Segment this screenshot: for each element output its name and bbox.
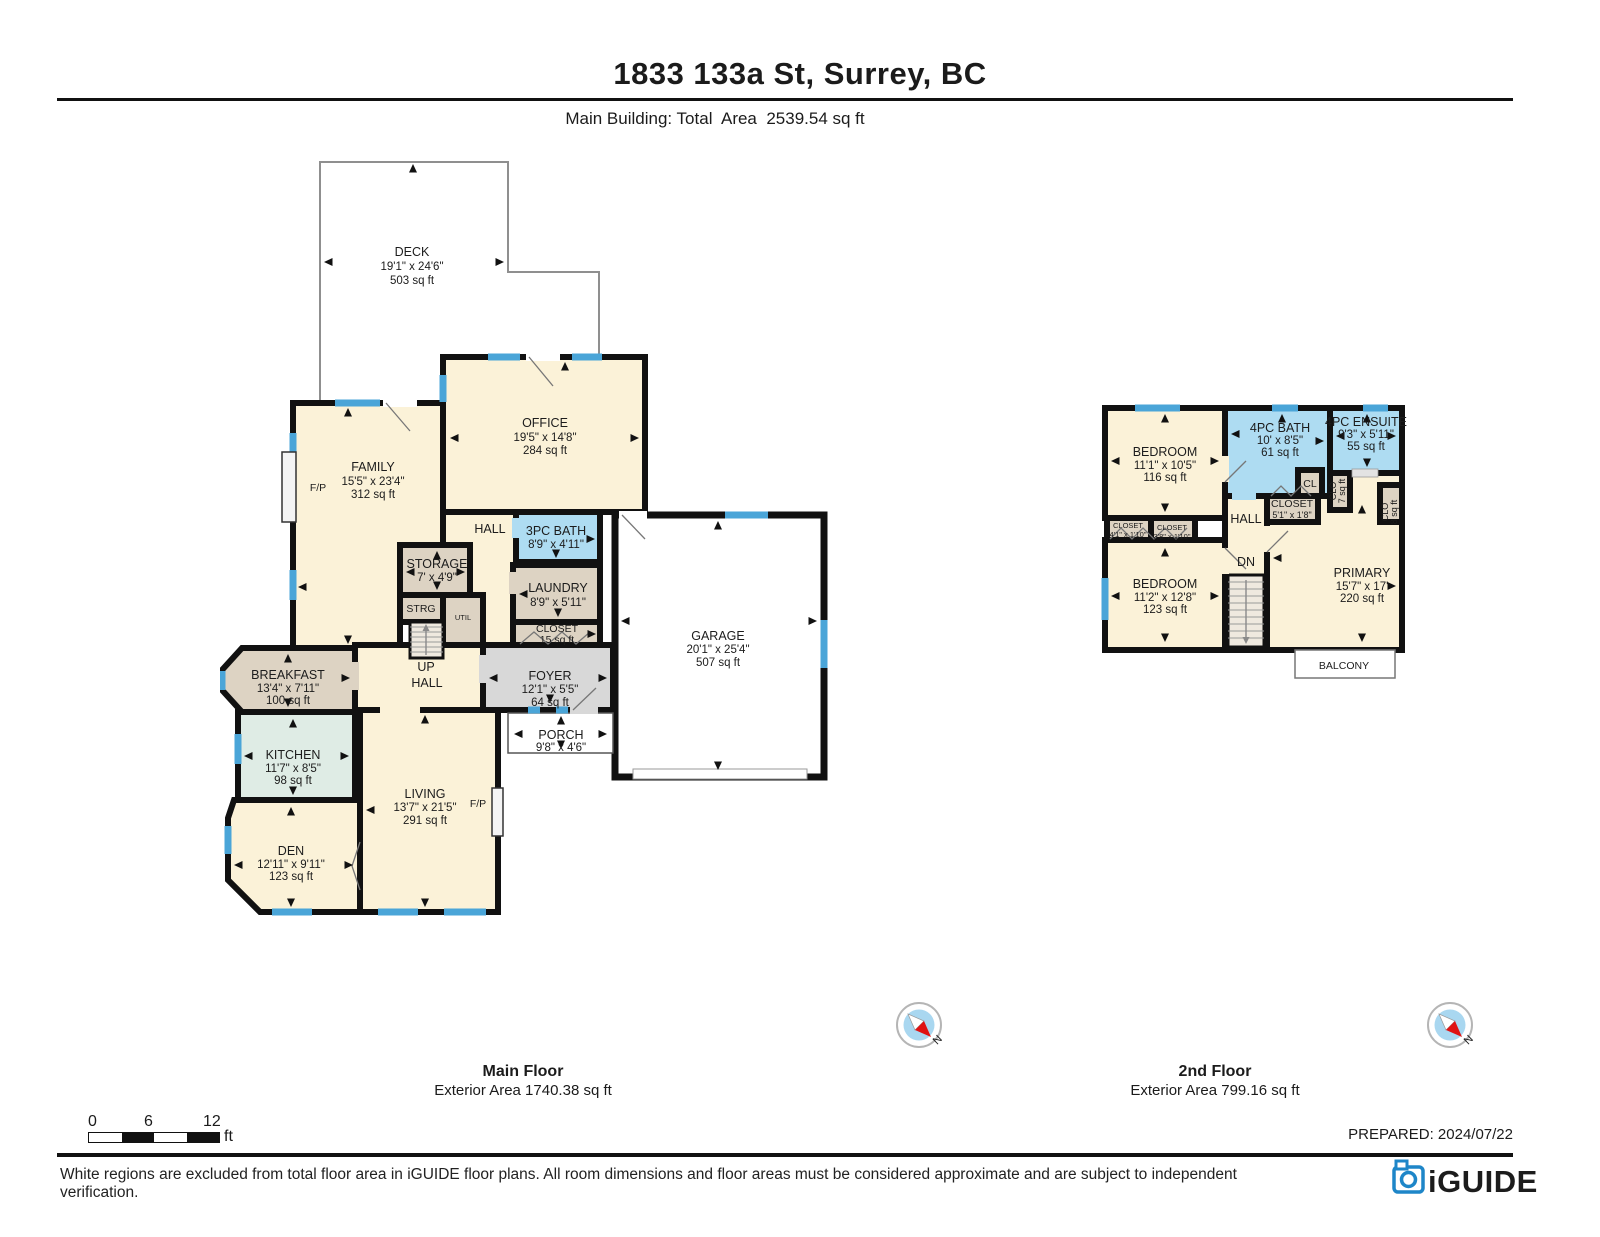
total-area-subtitle: Main Building: Total Area 2539.54 sq ft <box>415 109 1015 129</box>
foyer-name: FOYER <box>528 669 571 683</box>
dn-label: DN <box>1237 555 1255 569</box>
compass-icon: N <box>1424 999 1482 1057</box>
primary-name: PRIMARY <box>1334 566 1391 580</box>
main-floor-plan: DECK 19'1" x 24'6" 503 sq ft <box>220 150 830 935</box>
bedroom1-area: 116 sq ft <box>1143 472 1187 484</box>
scale-segment <box>89 1133 122 1142</box>
bedroom2-dims: 11'2" x 12'8" <box>1134 592 1196 604</box>
scale-segment <box>154 1133 187 1142</box>
page-title: 1833 133a St, Surrey, BC <box>0 56 1600 92</box>
kitchen-name: KITCHEN <box>266 748 321 762</box>
main-floor-area: Exterior Area 1740.38 sq ft <box>323 1081 723 1100</box>
fp-family-label: F/P <box>310 482 326 494</box>
den-dims: 12'11" x 9'11" <box>257 859 325 871</box>
second-floor-plan: BEDROOM 11'1" x 10'5" 116 sq ft 4PC BATH… <box>1080 390 1415 690</box>
disclaimer-text: White regions are excluded from total fl… <box>60 1166 1260 1202</box>
family-area: 312 sq ft <box>351 489 396 501</box>
main-floor-title: Main Floor <box>323 1062 723 1081</box>
closet-hall-dims: 5'1" x 1'8" <box>1272 510 1311 520</box>
laundry-name: LAUNDRY <box>528 581 588 595</box>
kitchen-dims: 11'7" x 8'5" <box>265 763 321 775</box>
den-area: 123 sq ft <box>269 871 314 883</box>
bedroom2-name: BEDROOM <box>1133 577 1198 591</box>
scale-tick-6: 6 <box>144 1113 153 1131</box>
scale-unit-label: ft <box>224 1128 233 1146</box>
strg-label: STRG <box>406 603 435 615</box>
garage-name: GARAGE <box>691 629 745 643</box>
scale-bar <box>88 1132 220 1143</box>
office-name: OFFICE <box>522 416 568 430</box>
closet38-dims: 3'8" x 1'10" <box>1154 532 1191 541</box>
closet38-name: CLOSET <box>1157 523 1187 532</box>
storage-name: STORAGE <box>407 557 468 571</box>
kitchen-area: 98 sq ft <box>274 775 313 787</box>
clo7-area: 7 sq ft <box>1337 478 1347 503</box>
bath3pc-dims: 8'9" x 4'11" <box>528 539 584 551</box>
iguide-logo: iGUIDE <box>1390 1158 1550 1200</box>
garage-door <box>633 769 807 779</box>
footer-divider <box>57 1153 1513 1157</box>
scale-segment <box>187 1133 220 1142</box>
cl-label: CL <box>1303 478 1317 490</box>
den-name: DEN <box>278 844 304 858</box>
fp-living-label: F/P <box>470 798 486 810</box>
hall2-label: HALL <box>1230 512 1261 526</box>
scale-tick-12: 12 <box>203 1113 221 1131</box>
second-floor-area: Exterior Area 799.16 sq ft <box>1015 1081 1415 1100</box>
ensuite-name: 4PC ENSUITE <box>1325 415 1407 429</box>
closet41-dims: 4'1" x 1'10" <box>1110 530 1147 539</box>
bath4pc-area: 61 sq ft <box>1261 447 1300 459</box>
hall-upper-label: HALL <box>474 522 505 536</box>
camera-icon <box>1394 1161 1423 1192</box>
title-divider <box>57 98 1513 101</box>
garage-area: 507 sq ft <box>696 657 741 669</box>
breakfast-name: BREAKFAST <box>251 668 325 682</box>
ensuite-area: 55 sq ft <box>1347 441 1386 453</box>
scale-tick-0: 0 <box>88 1113 97 1131</box>
living-name: LIVING <box>405 787 446 801</box>
prepared-date: PREPARED: 2024/07/22 <box>1113 1126 1513 1143</box>
porch-name: PORCH <box>538 728 583 742</box>
clo8-area: 8 sq ft <box>1389 499 1399 524</box>
second-floor-title: 2nd Floor <box>1015 1062 1415 1081</box>
primary-area: 220 sq ft <box>1340 593 1385 605</box>
deck-dims: 19'1" x 24'6" <box>380 261 443 273</box>
stairs-up <box>410 622 443 658</box>
office-area: 284 sq ft <box>523 445 568 457</box>
second-floor-caption: 2nd Floor Exterior Area 799.16 sq ft <box>1015 1062 1415 1100</box>
foyer-area: 64 sq ft <box>531 697 570 709</box>
closet41-name: CLOSET <box>1113 521 1143 530</box>
util-label: UTIL <box>455 613 471 622</box>
bath4pc-name: 4PC BATH <box>1250 421 1310 435</box>
bedroom1-name: BEDROOM <box>1133 445 1198 459</box>
closet15-area: 15 sq ft <box>540 634 575 646</box>
laundry-dims: 8'9" x 5'11" <box>530 597 586 609</box>
hall-lower-label: HALL <box>411 676 442 690</box>
main-floor-caption: Main Floor Exterior Area 1740.38 sq ft <box>323 1062 723 1100</box>
compass-icon: N <box>893 999 951 1057</box>
family-name: FAMILY <box>351 460 395 474</box>
iguide-logo-text: iGUIDE <box>1428 1164 1538 1199</box>
garage-dims: 20'1" x 25'4" <box>686 644 749 656</box>
breakfast-area: 100 sq ft <box>266 695 311 707</box>
bedroom1-dims: 11'1" x 10'5" <box>1134 460 1196 472</box>
scale-segment <box>122 1133 155 1142</box>
up-label: UP <box>417 660 434 674</box>
storage-dims: 7' x 4'9" <box>417 572 457 584</box>
primary-dims: 15'7" x 17' <box>1336 581 1389 593</box>
deck-area: 503 sq ft <box>390 275 435 287</box>
deck-name: DECK <box>395 245 430 259</box>
balcony-label: BALCONY <box>1319 660 1369 672</box>
ensuite-dims: 9'3" x 5'11" <box>1338 429 1394 441</box>
bedroom2-area: 123 sq ft <box>1143 604 1188 616</box>
bath3pc-name: 3PC BATH <box>526 524 586 538</box>
office-dims: 19'5" x 14'8" <box>513 432 576 444</box>
breakfast-dims: 13'4" x 7'11" <box>257 683 319 695</box>
living-dims: 13'7" x 21'5" <box>393 802 456 814</box>
stairs-down <box>1228 575 1264 647</box>
porch-dims: 9'8" x 4'6" <box>536 742 586 754</box>
floorplan-page: 1833 133a St, Surrey, BC Main Building: … <box>0 0 1600 1237</box>
family-dims: 15'5" x 23'4" <box>341 476 404 488</box>
living-area: 291 sq ft <box>403 815 448 827</box>
foyer-dims: 12'1" x 5'5" <box>522 684 579 696</box>
closet-hall-name: CLOSET <box>1271 498 1314 510</box>
bath4pc-dims: 10' x 8'5" <box>1257 435 1303 447</box>
